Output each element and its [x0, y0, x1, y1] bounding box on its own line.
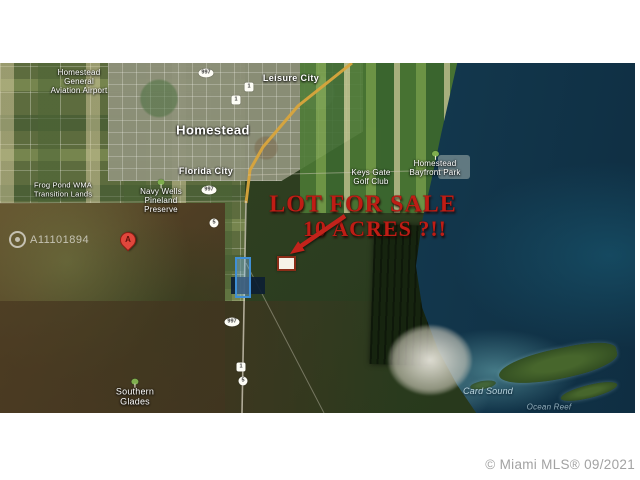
sale-arrow [0, 0, 640, 480]
listing-image: HomesteadGeneralAviation AirportHomestea… [0, 0, 640, 480]
mls-number: A11101894 [30, 234, 89, 246]
attribution-text: © Miami MLS® 09/2021 [485, 457, 635, 472]
mls-watermark: A11101894 [9, 231, 89, 248]
camera-icon [9, 231, 26, 248]
